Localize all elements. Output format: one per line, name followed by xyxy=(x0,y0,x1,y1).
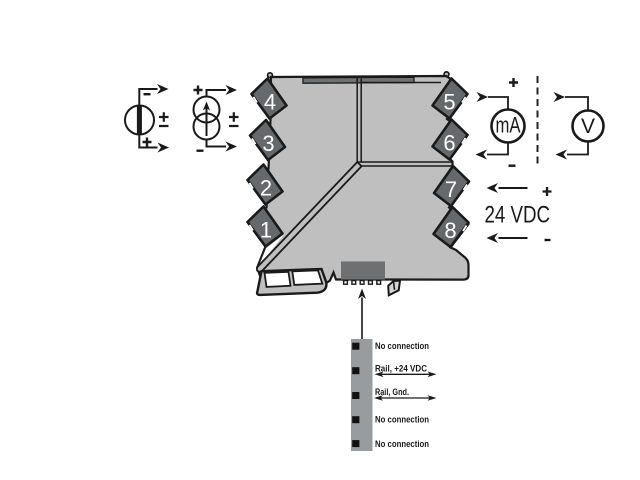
svg-text:24 VDC: 24 VDC xyxy=(485,201,551,228)
svg-text:3: 3 xyxy=(262,131,274,156)
svg-text:No connection: No connection xyxy=(375,341,429,351)
svg-text:8: 8 xyxy=(444,218,456,243)
svg-text:5: 5 xyxy=(443,90,455,115)
svg-text:mA: mA xyxy=(496,113,521,138)
svg-text:1: 1 xyxy=(260,218,272,243)
svg-text:No connection: No connection xyxy=(375,415,429,425)
svg-text:6: 6 xyxy=(443,131,455,156)
svg-text:7: 7 xyxy=(445,177,457,202)
svg-text:2: 2 xyxy=(260,176,272,201)
svg-text:4: 4 xyxy=(264,90,276,115)
svg-text:Rail, Gnd.: Rail, Gnd. xyxy=(375,387,409,397)
svg-text:No connection: No connection xyxy=(375,439,429,449)
svg-text:V: V xyxy=(581,115,595,138)
